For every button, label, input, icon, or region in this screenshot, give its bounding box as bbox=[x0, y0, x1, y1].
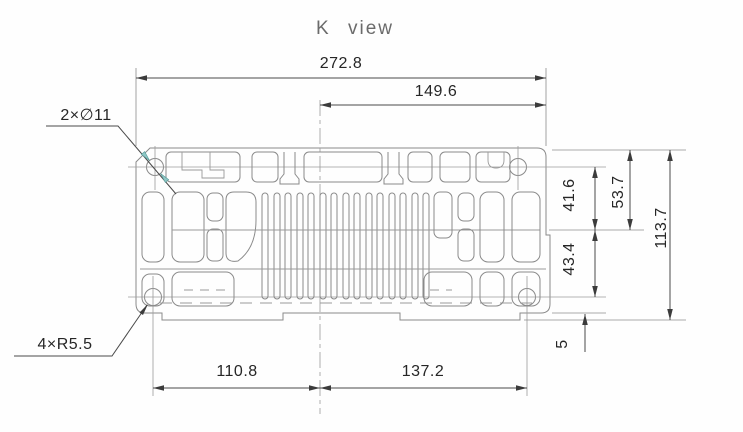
view-title: K view bbox=[316, 18, 394, 40]
dim-right-upper-height: 41.6 bbox=[561, 178, 579, 211]
hole-callout-leader bbox=[46, 126, 176, 194]
dim-lower-left-width: 110.8 bbox=[216, 363, 257, 381]
dim-lower-right-width: 137.2 bbox=[402, 363, 445, 381]
technical-drawing-page: K view 272.8 149.6 110.8 137.2 41.6 53.7… bbox=[0, 0, 743, 432]
dimension-lines bbox=[136, 78, 670, 388]
extension-lines bbox=[136, 68, 686, 320]
center-lines bbox=[128, 100, 606, 414]
dimension-arrowheads bbox=[136, 75, 673, 391]
callout-corner-radius: 4×R5.5 bbox=[37, 336, 92, 354]
top-pocket-row bbox=[166, 152, 510, 184]
callout-holes: 2×∅11 bbox=[60, 105, 111, 125]
hanger-tab-left bbox=[280, 152, 299, 184]
drawing-canvas bbox=[0, 0, 743, 432]
dim-base-step: 5 bbox=[554, 339, 572, 348]
right-pocket-cluster bbox=[424, 192, 540, 306]
dim-upper-right-width: 149.6 bbox=[415, 83, 458, 101]
left-pocket-cluster bbox=[142, 192, 256, 306]
hanger-tab-right bbox=[384, 152, 403, 184]
leader-lines bbox=[14, 126, 176, 356]
dim-right-lower-height: 43.4 bbox=[561, 242, 579, 275]
dim-overall-width: 272.8 bbox=[320, 55, 363, 73]
dim-overall-height: 113.7 bbox=[653, 207, 671, 248]
dim-right-upper-total: 53.7 bbox=[610, 175, 628, 208]
fin-array bbox=[262, 193, 429, 299]
